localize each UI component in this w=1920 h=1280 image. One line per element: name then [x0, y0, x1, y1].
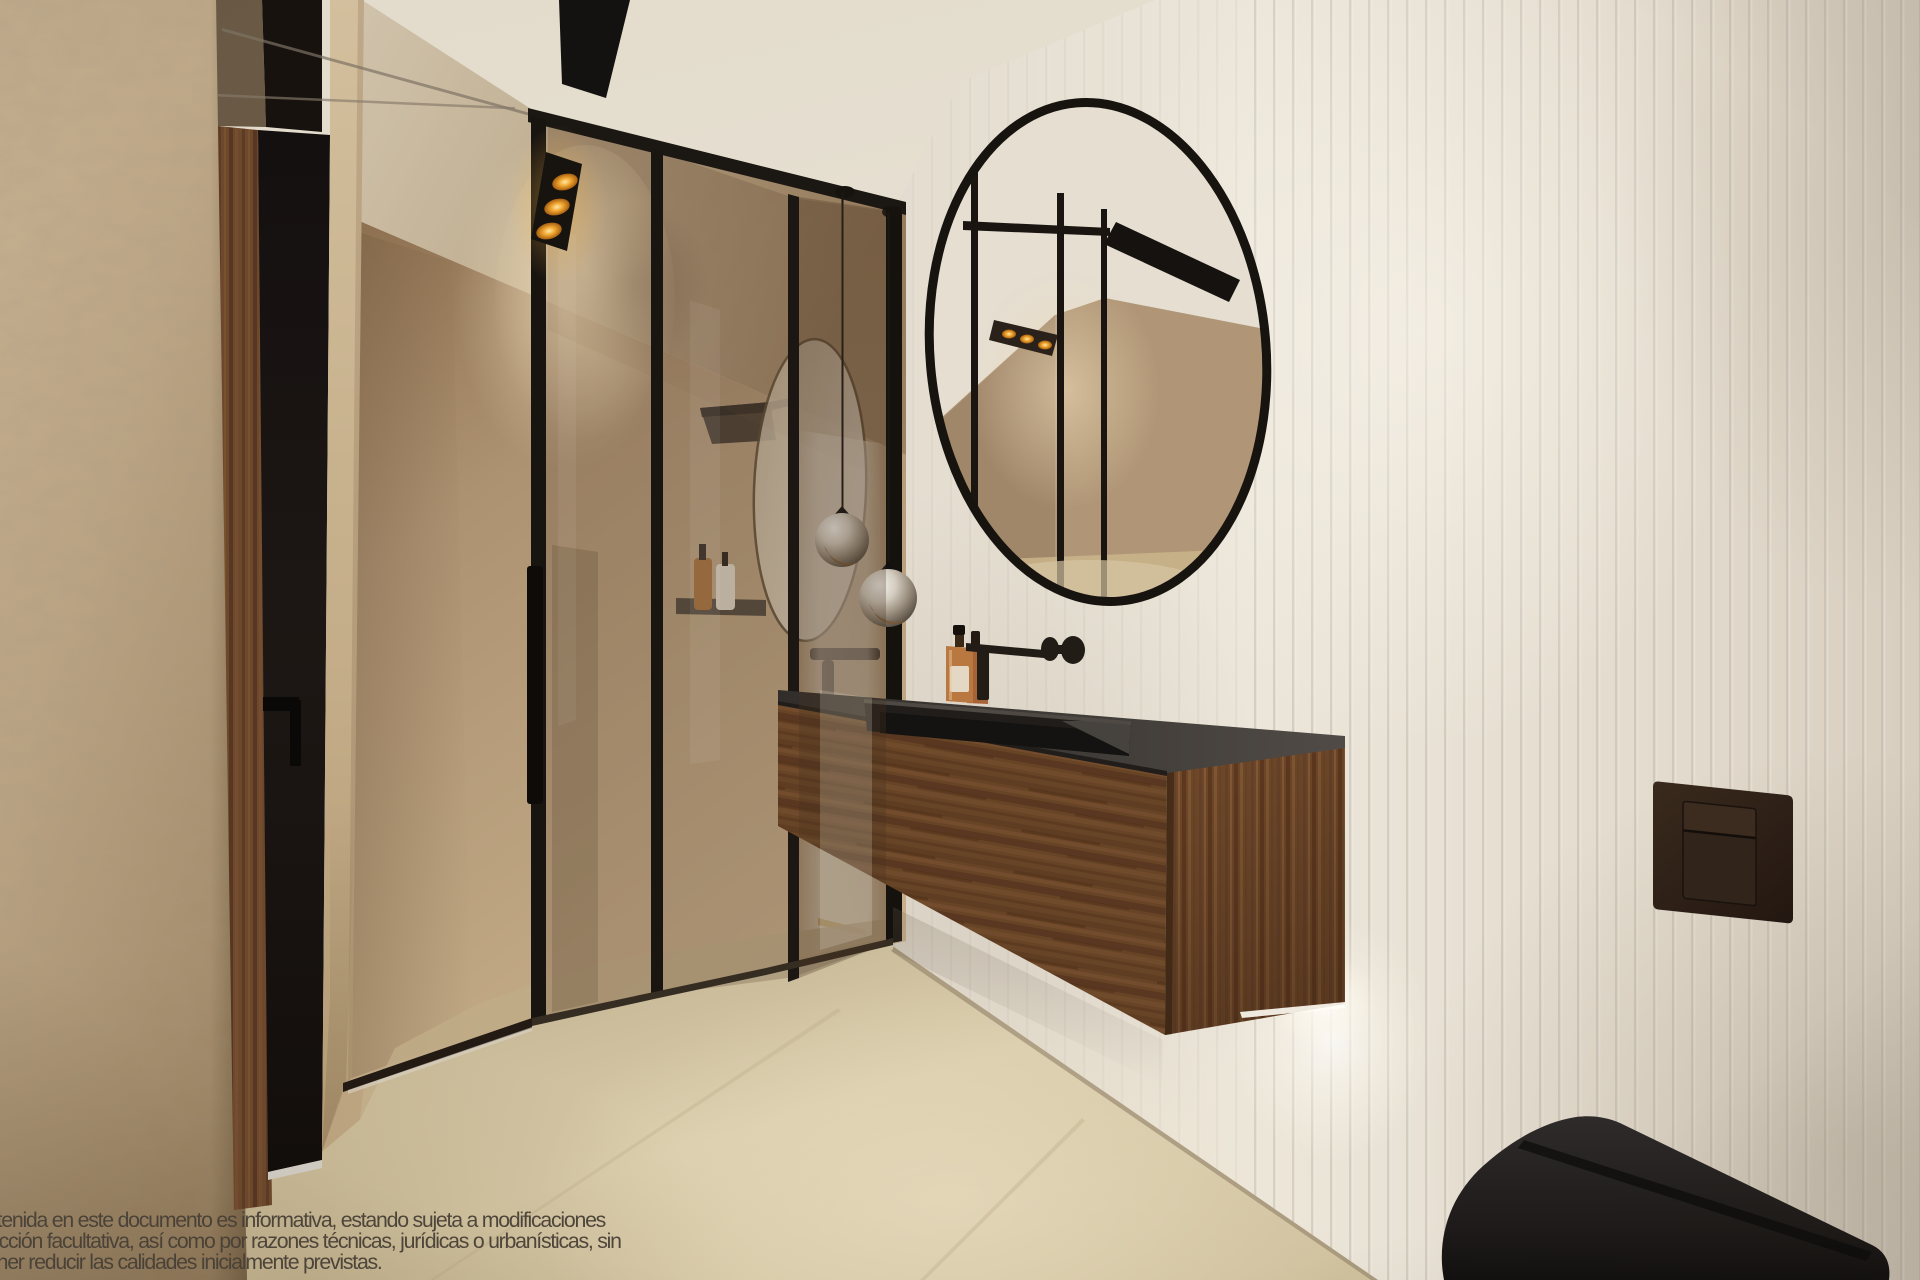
svg-text:oner reducir las calidades ini: oner reducir las calidades inicialmente …: [0, 1250, 382, 1274]
